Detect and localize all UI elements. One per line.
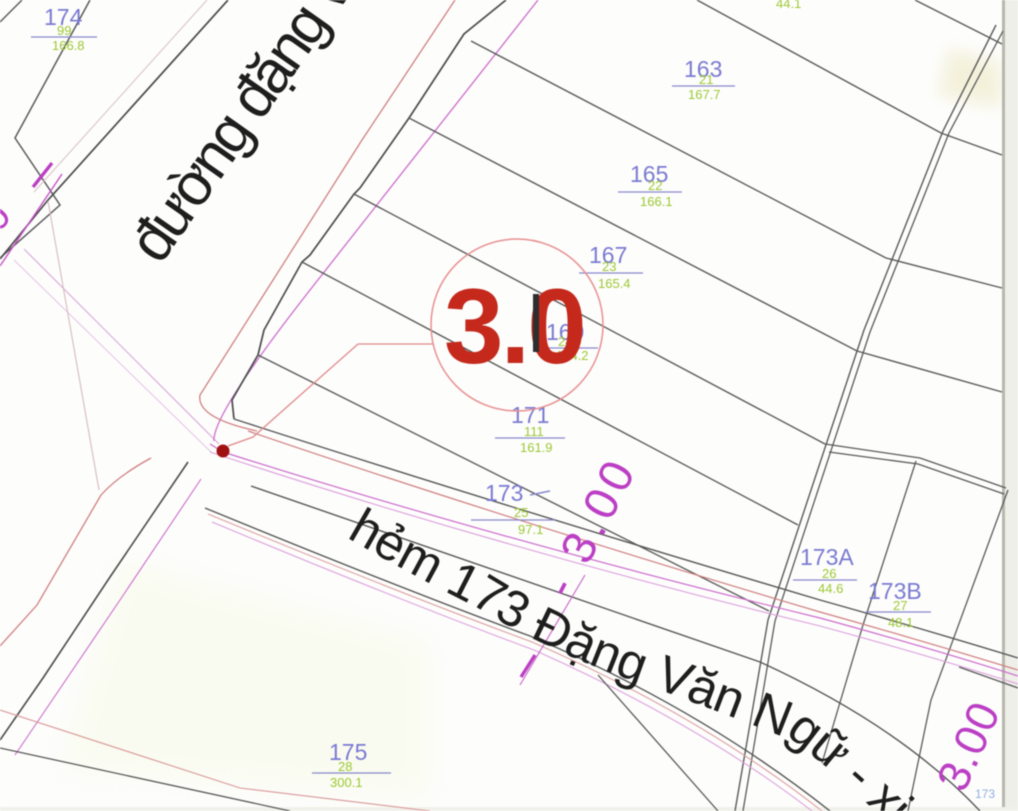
svg-text:111: 111 bbox=[524, 424, 544, 439]
svg-text:166.8: 166.8 bbox=[52, 38, 85, 53]
svg-text:167.7: 167.7 bbox=[688, 87, 721, 102]
svg-text:173: 173 bbox=[485, 480, 523, 506]
svg-text:44.1: 44.1 bbox=[776, 0, 801, 11]
svg-text:97.1: 97.1 bbox=[518, 522, 543, 537]
svg-text:23: 23 bbox=[602, 259, 616, 274]
svg-text:99: 99 bbox=[57, 23, 71, 38]
svg-text:26: 26 bbox=[822, 566, 836, 581]
svg-text:300.1: 300.1 bbox=[330, 775, 363, 790]
svg-text:25: 25 bbox=[514, 505, 528, 520]
svg-text:21: 21 bbox=[699, 72, 713, 87]
svg-text:27: 27 bbox=[893, 598, 907, 613]
svg-text:161.9: 161.9 bbox=[520, 440, 553, 455]
svg-text:3.0: 3.0 bbox=[444, 266, 584, 386]
svg-text:44.6: 44.6 bbox=[818, 581, 843, 596]
svg-text:28: 28 bbox=[338, 759, 352, 774]
svg-text:48.1: 48.1 bbox=[888, 615, 913, 630]
svg-text:166.1: 166.1 bbox=[640, 194, 673, 209]
svg-text:173: 173 bbox=[975, 787, 995, 801]
svg-text:165.4: 165.4 bbox=[598, 276, 631, 291]
svg-text:22: 22 bbox=[648, 178, 662, 193]
